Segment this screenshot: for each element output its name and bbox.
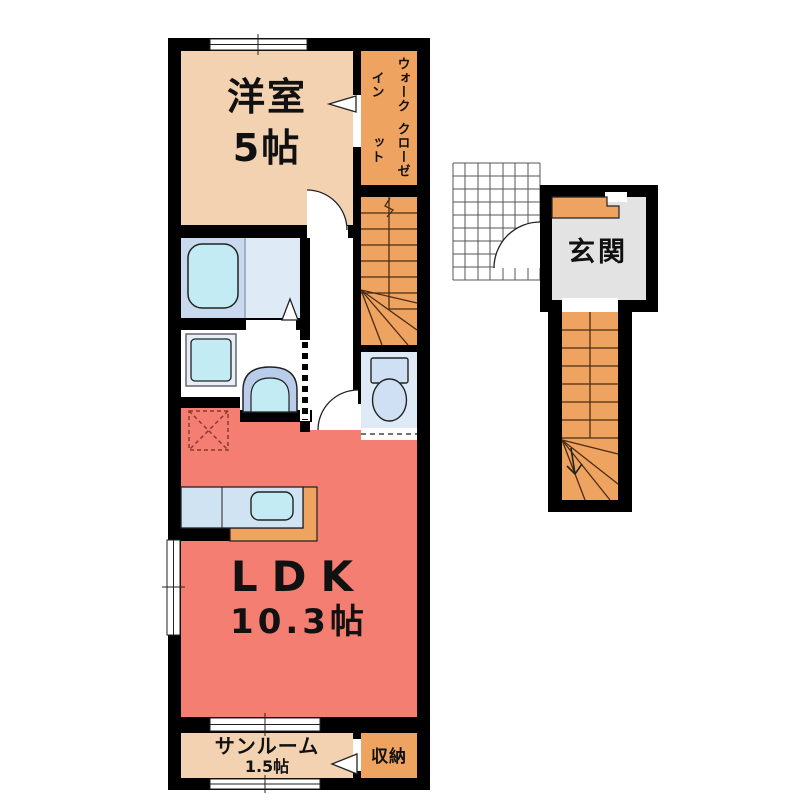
washing-machine-pan <box>186 334 236 386</box>
entrance-door-swing <box>494 222 540 268</box>
sunroom-name: サンルーム <box>181 735 353 757</box>
walk-in-closet-name-line1: ウォークイン <box>363 52 415 117</box>
washbasin <box>243 367 297 412</box>
bathtub <box>188 244 238 308</box>
western-room-name: 洋室 <box>181 72 353 123</box>
ldk-label: LDK 10.3帖 <box>181 556 417 647</box>
walk-in-closet-name-line2: クローゼット <box>363 117 415 182</box>
sunroom-label: サンルーム 1.5帖 <box>181 735 353 776</box>
storage-label: 収納 <box>361 742 417 767</box>
ldk-name: LDK <box>181 556 417 598</box>
western-room-label: 洋室 5帖 <box>181 72 353 175</box>
toilet-fixture <box>371 358 408 421</box>
ldk-size: 10.3帖 <box>181 598 417 647</box>
sunroom-size: 1.5帖 <box>181 757 353 776</box>
entrance-door-mark <box>605 192 627 202</box>
stairwell-opening <box>562 298 618 312</box>
western-room-size: 5帖 <box>181 123 353 174</box>
entrance-label: 玄関 <box>550 230 646 269</box>
kitchen-sink <box>251 492 293 520</box>
floor-plan: 洋室 5帖 ウォークイン クローゼット 玄関 LDK 10.3帖 サンルーム 1… <box>0 0 800 800</box>
walk-in-closet-label: ウォークイン クローゼット <box>360 52 417 182</box>
